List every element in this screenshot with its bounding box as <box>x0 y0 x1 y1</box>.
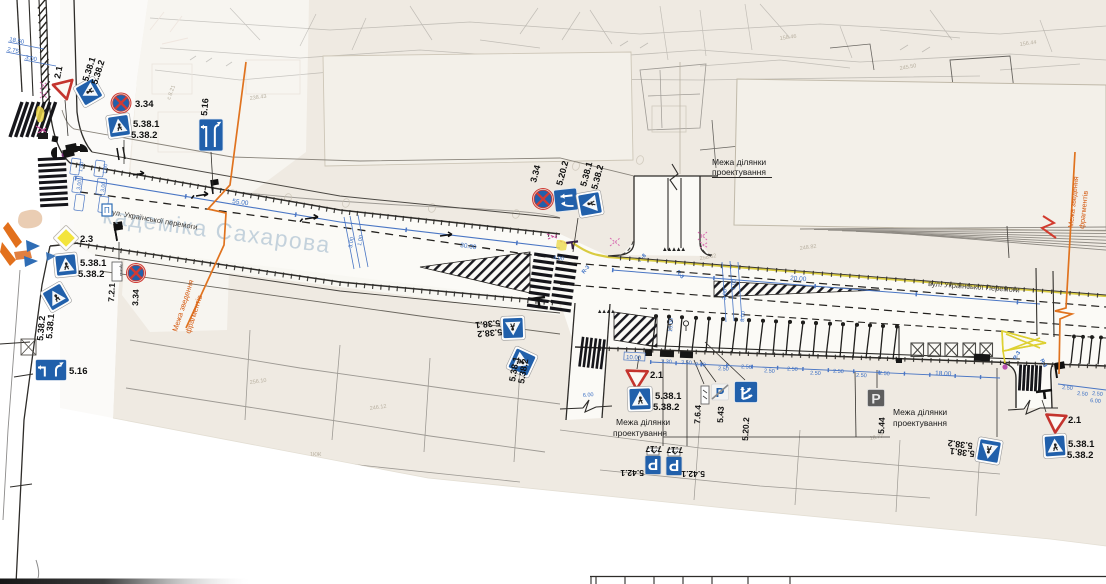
svg-text:проектування: проектування <box>712 167 766 177</box>
svg-text:5.43: 5.43 <box>715 406 726 423</box>
svg-text:П: П <box>104 206 110 215</box>
svg-text:6.00: 6.00 <box>583 392 594 399</box>
svg-text:2.50: 2.50 <box>833 369 844 376</box>
svg-text:5.16: 5.16 <box>199 98 210 116</box>
svg-text:2.1: 2.1 <box>1068 415 1082 426</box>
svg-text:5.42.1: 5.42.1 <box>620 468 644 478</box>
svg-text:3.00: 3.00 <box>722 289 729 300</box>
svg-text:10.00: 10.00 <box>626 355 642 362</box>
svg-text:2.50: 2.50 <box>695 362 706 369</box>
svg-text:5.20.2: 5.20.2 <box>740 417 751 441</box>
svg-text:5.38.1: 5.38.1 <box>133 119 160 130</box>
svg-text:15.00: 15.00 <box>668 318 675 332</box>
svg-text:7.17: 7.17 <box>645 444 662 454</box>
svg-text:P: P <box>669 456 679 473</box>
svg-text:2.50: 2.50 <box>764 368 775 375</box>
svg-text:2.50: 2.50 <box>810 371 821 378</box>
svg-text:P: P <box>871 390 880 406</box>
svg-text:5.44: 5.44 <box>876 417 887 434</box>
svg-text:5.16: 5.16 <box>69 366 88 377</box>
svg-text:проектування: проектування <box>893 418 947 428</box>
svg-text:5.38.2: 5.38.2 <box>1067 450 1093 461</box>
svg-text:3.00: 3.00 <box>740 311 747 322</box>
svg-text:2.50: 2.50 <box>1092 391 1103 398</box>
svg-text:7.6.4: 7.6.4 <box>692 404 703 424</box>
svg-text:5.38.2: 5.38.2 <box>131 130 157 141</box>
svg-text:20.00: 20.00 <box>790 275 807 283</box>
svg-text:Межа ділянки: Межа ділянки <box>616 417 670 427</box>
svg-text:Межа ділянки: Межа ділянки <box>712 157 766 167</box>
svg-text:5.38.1: 5.38.1 <box>655 391 682 402</box>
svg-text:7.2.1: 7.2.1 <box>106 282 117 302</box>
svg-text:2.3: 2.3 <box>80 234 93 245</box>
svg-text:проектування: проектування <box>613 428 667 438</box>
svg-text:5.42.1: 5.42.1 <box>681 469 705 479</box>
svg-text:5.38.2: 5.38.2 <box>653 402 679 413</box>
svg-text:2.1: 2.1 <box>650 370 664 381</box>
svg-text:5.38.2: 5.38.2 <box>78 269 104 280</box>
svg-text:Зупинка: Зупинка <box>119 264 123 276</box>
svg-text:2.50: 2.50 <box>1077 391 1088 398</box>
svg-text:P: P <box>648 455 658 472</box>
svg-text:2.50: 2.50 <box>787 366 798 373</box>
svg-text:5.38.1: 5.38.1 <box>80 258 107 269</box>
svg-text:6.00: 6.00 <box>1090 398 1101 405</box>
svg-text:5.38.1: 5.38.1 <box>1068 439 1095 450</box>
svg-text:18.00: 18.00 <box>935 370 952 378</box>
svg-text:3.34: 3.34 <box>135 99 154 110</box>
svg-text:2.50: 2.50 <box>879 371 890 378</box>
svg-text:2.50: 2.50 <box>856 373 867 380</box>
svg-text:7.17: 7.17 <box>666 445 683 455</box>
svg-text:1.00: 1.00 <box>731 279 738 290</box>
svg-text:3.34: 3.34 <box>130 289 141 306</box>
svg-text:2.50: 2.50 <box>741 364 752 371</box>
svg-text:Межа ділянки: Межа ділянки <box>893 407 947 417</box>
